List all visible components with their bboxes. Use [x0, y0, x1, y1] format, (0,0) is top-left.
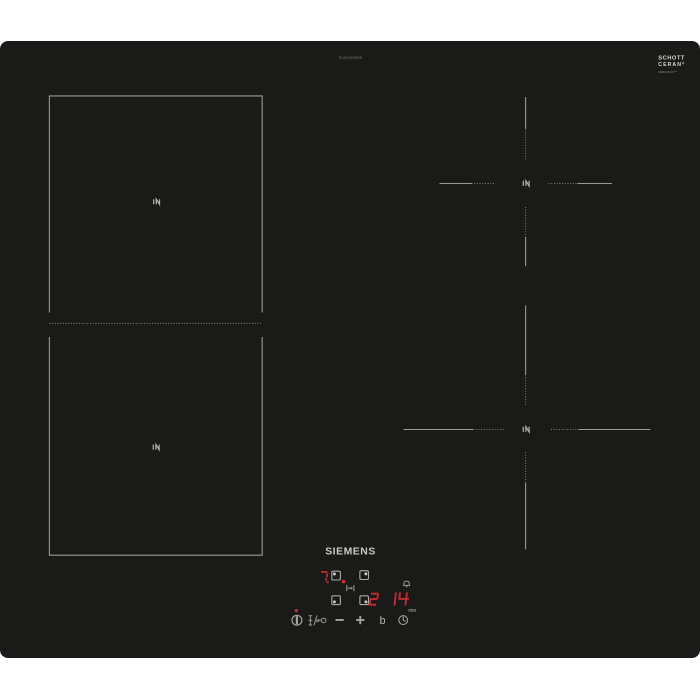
svg-text:SIEMENS: SIEMENS	[325, 547, 376, 558]
svg-text:EU611BEB5E: EU611BEB5E	[339, 56, 363, 60]
svg-text:SCHOTT: SCHOTT	[658, 56, 685, 62]
svg-text:min: min	[408, 608, 416, 614]
svg-text:b: b	[380, 615, 386, 627]
svg-text:CERAN®: CERAN®	[658, 61, 685, 68]
svg-text:MIRODUR™: MIRODUR™	[658, 70, 677, 74]
